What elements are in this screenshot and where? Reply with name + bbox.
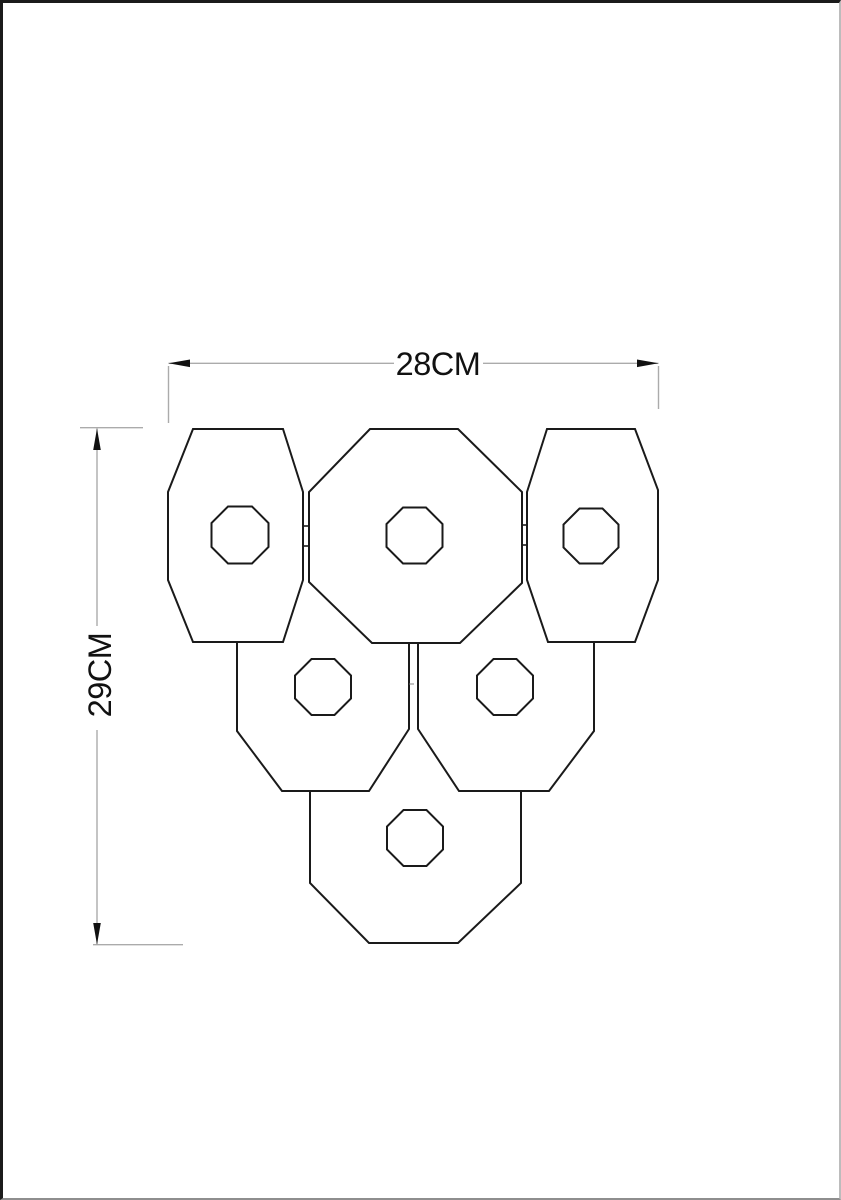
hole-bottom	[387, 810, 443, 866]
shade-center-holes	[212, 507, 619, 867]
height-dimension-label: 29CM	[82, 633, 118, 718]
shade-top-center	[309, 429, 522, 643]
hole-mid-right	[477, 659, 533, 715]
shade-top-right	[527, 429, 658, 642]
hole-top-left	[212, 507, 269, 564]
arrow-left-icon	[169, 360, 191, 368]
shade-top-left	[168, 429, 303, 642]
arrow-down-icon	[93, 923, 101, 945]
shade-mid-left	[237, 642, 409, 791]
arrow-up-icon	[93, 429, 101, 451]
width-dimension-label: 28CM	[396, 346, 481, 382]
hole-mid-left	[295, 659, 351, 715]
hole-top-center	[387, 508, 443, 564]
shade-bottom	[310, 792, 521, 943]
shade-mid-right	[418, 642, 594, 791]
width-dimension: 28CM	[169, 346, 659, 423]
hole-top-right	[564, 509, 619, 564]
arrow-right-icon	[637, 360, 659, 368]
technical-drawing-canvas: 28CM 29CM	[0, 0, 841, 1200]
spec-sheet-page: 28CM 29CM	[0, 0, 841, 1200]
